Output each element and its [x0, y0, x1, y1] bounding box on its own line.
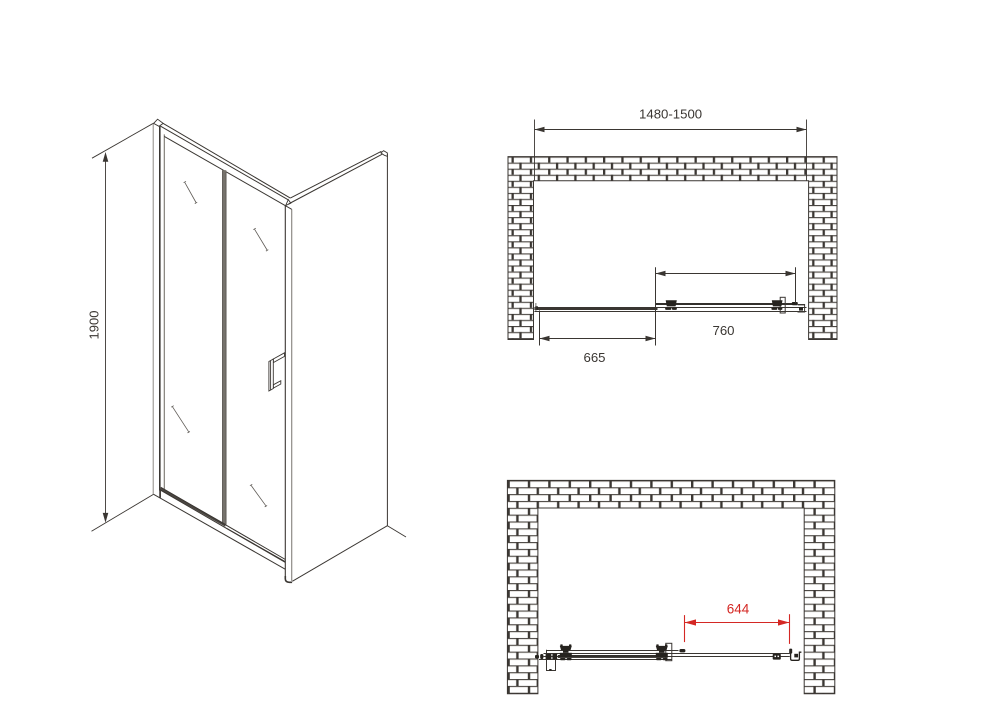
svg-text:665: 665 — [583, 350, 605, 365]
svg-text:1480-1500: 1480-1500 — [639, 106, 702, 121]
svg-text:644: 644 — [727, 601, 750, 616]
svg-text:1900: 1900 — [87, 311, 102, 340]
svg-text:760: 760 — [712, 323, 734, 338]
